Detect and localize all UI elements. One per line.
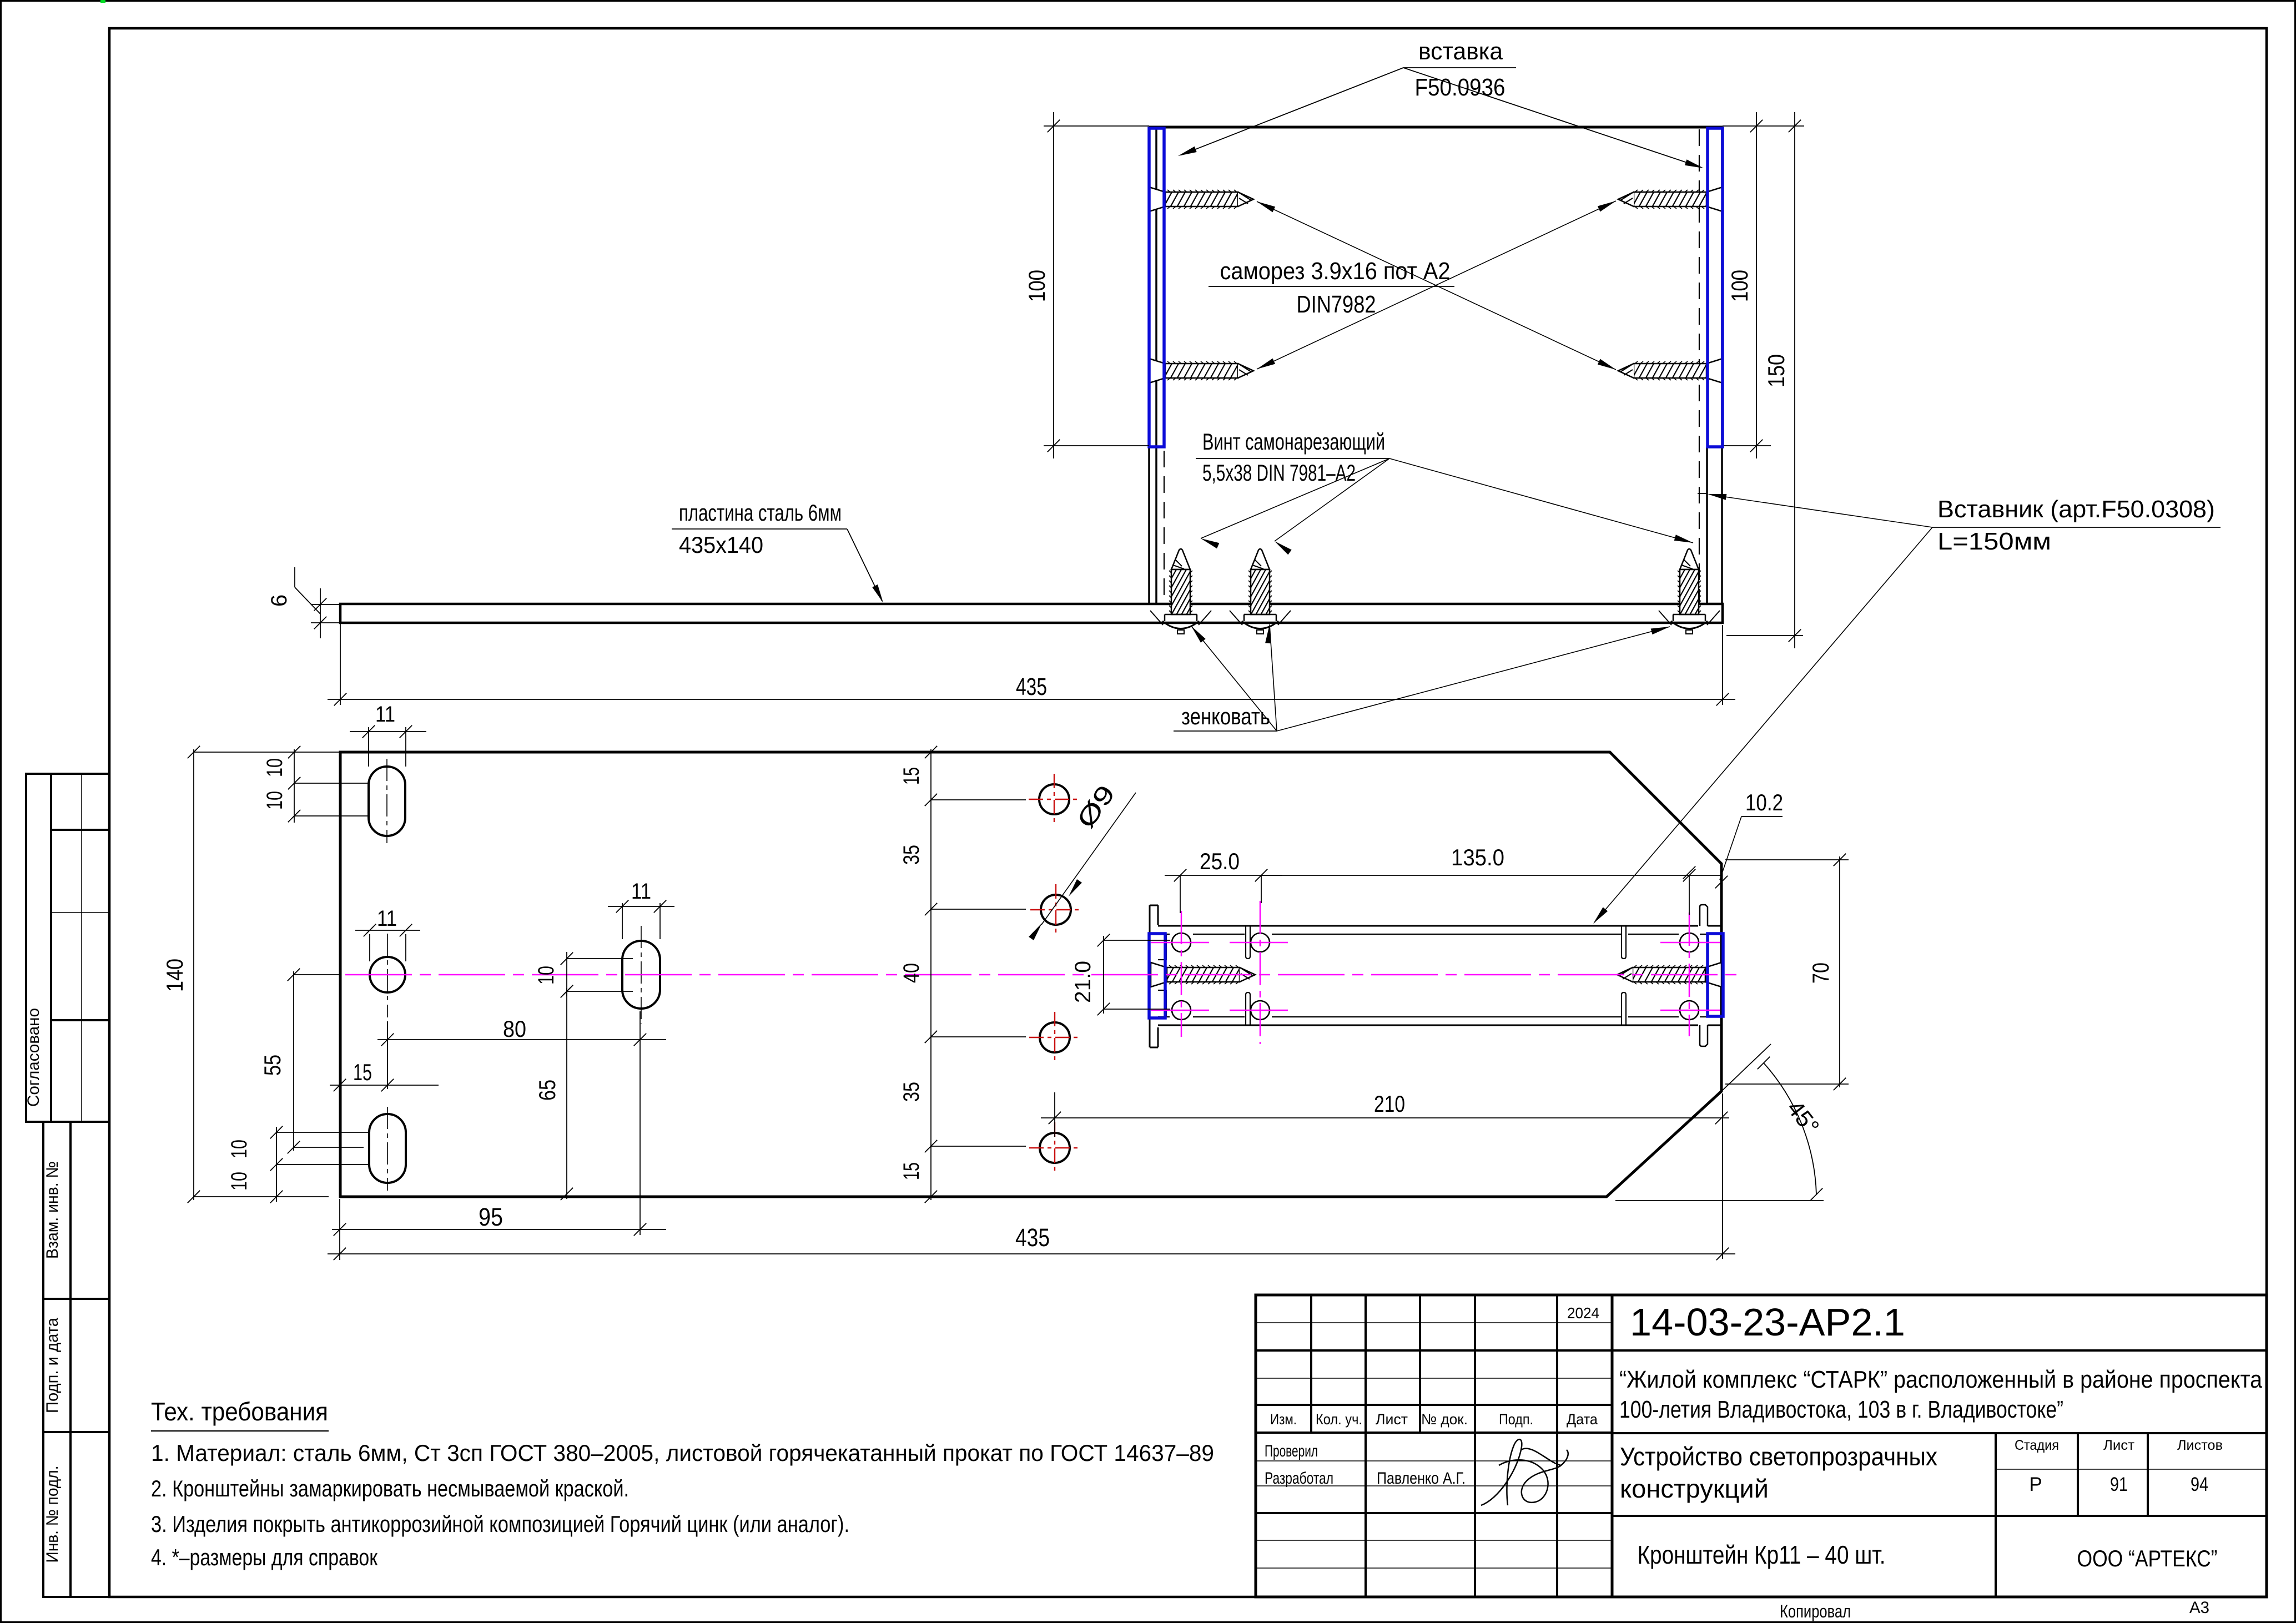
svg-text:5,5х38 DIN 7981–А2: 5,5х38 DIN 7981–А2 <box>1202 460 1356 486</box>
svg-text:14-03-23-АР2.1: 14-03-23-АР2.1 <box>1630 1301 1905 1344</box>
svg-text:Согласовано: Согласовано <box>24 1008 43 1107</box>
svg-text:Разработал: Разработал <box>1265 1469 1333 1488</box>
svg-text:Тех. требования: Тех. требования <box>151 1397 328 1426</box>
svg-text:Лист: Лист <box>1376 1411 1408 1428</box>
svg-text:95: 95 <box>479 1203 503 1231</box>
svg-text:Изм.: Изм. <box>1270 1411 1297 1428</box>
svg-text:10: 10 <box>227 1140 251 1158</box>
svg-text:100: 100 <box>1024 270 1050 302</box>
svg-text:25.0: 25.0 <box>1200 848 1240 874</box>
svg-text:Стадия: Стадия <box>2015 1438 2059 1453</box>
svg-text:№ док.: № док. <box>1421 1411 1468 1428</box>
svg-text:1. Материал: сталь 6мм, Ст 3сп: 1. Материал: сталь 6мм, Ст 3сп ГОСТ 380–… <box>151 1440 1214 1466</box>
svg-text:конструкций: конструкций <box>1620 1474 1769 1503</box>
svg-text:435: 435 <box>1016 673 1047 700</box>
svg-text:21.0: 21.0 <box>1071 961 1095 1003</box>
svg-text:35: 35 <box>899 845 924 865</box>
svg-text:15: 15 <box>353 1059 372 1085</box>
svg-text:Устройство светопрозрачных: Устройство светопрозрачных <box>1620 1442 1937 1471</box>
svg-text:40: 40 <box>899 963 924 983</box>
svg-text:Взам. инв. №: Взам. инв. № <box>43 1161 62 1259</box>
svg-text:Листов: Листов <box>2177 1438 2223 1453</box>
svg-text:саморез 3.9х16 пот А2: саморез 3.9х16 пот А2 <box>1220 258 1451 285</box>
svg-text:15: 15 <box>899 1162 924 1180</box>
svg-text:435х140: 435х140 <box>679 532 763 558</box>
svg-text:Вставник (арт.F50.0308): Вставник (арт.F50.0308) <box>1937 496 2215 523</box>
svg-text:Р: Р <box>2029 1474 2042 1495</box>
svg-text:10: 10 <box>263 758 287 777</box>
svg-text:ООО “АРТЕКС”: ООО “АРТЕКС” <box>2077 1545 2218 1571</box>
svg-text:10: 10 <box>263 791 287 810</box>
svg-text:11: 11 <box>377 906 397 931</box>
svg-text:Проверил: Проверил <box>1265 1442 1318 1460</box>
svg-text:11: 11 <box>375 702 395 727</box>
svg-text:55: 55 <box>259 1055 285 1076</box>
svg-text:210: 210 <box>1374 1091 1405 1117</box>
svg-text:2024: 2024 <box>1567 1304 1599 1322</box>
svg-text:70: 70 <box>1807 962 1834 984</box>
svg-text:91: 91 <box>2110 1474 2128 1495</box>
svg-text:6: 6 <box>267 594 291 607</box>
svg-text:100: 100 <box>1726 270 1753 302</box>
svg-text:4. *–размеры для справок: 4. *–размеры для справок <box>151 1544 378 1570</box>
svg-text:11: 11 <box>631 879 651 904</box>
svg-text:100-летия Владивостока, 103 в: 100-летия Владивостока, 103 в г. Владиво… <box>1619 1396 2063 1423</box>
svg-text:Инв. № подл.: Инв. № подл. <box>43 1466 62 1563</box>
svg-text:10: 10 <box>227 1172 251 1191</box>
svg-text:L=150мм: L=150мм <box>1937 528 2051 555</box>
svg-text:вставка: вставка <box>1418 38 1503 65</box>
svg-text:Винт самонарезающий: Винт самонарезающий <box>1202 429 1385 455</box>
svg-text:Подп.: Подп. <box>1499 1411 1533 1428</box>
svg-text:140: 140 <box>162 959 188 992</box>
svg-text:135.0: 135.0 <box>1451 844 1504 870</box>
svg-text:2. Кронштейны замаркировать не: 2. Кронштейны замаркировать несмываемой … <box>151 1475 629 1501</box>
svg-text:150: 150 <box>1763 354 1789 387</box>
svg-text:10: 10 <box>534 966 558 985</box>
svg-text:35: 35 <box>899 1082 924 1102</box>
svg-text:65: 65 <box>534 1080 560 1101</box>
svg-text:Павленко А.Г.: Павленко А.Г. <box>1377 1469 1466 1488</box>
svg-text:Дата: Дата <box>1567 1411 1598 1428</box>
svg-text:10.2: 10.2 <box>1745 789 1783 815</box>
svg-text:80: 80 <box>503 1016 526 1042</box>
svg-text:А3: А3 <box>2189 1599 2209 1617</box>
svg-text:15: 15 <box>899 767 924 785</box>
svg-text:435: 435 <box>1015 1223 1050 1252</box>
svg-text:Подп. и дата: Подп. и дата <box>43 1318 62 1413</box>
svg-text:94: 94 <box>2191 1474 2208 1495</box>
svg-text:Лист: Лист <box>2103 1438 2135 1453</box>
svg-text:Копировал: Копировал <box>1780 1601 1851 1621</box>
svg-text:DIN7982: DIN7982 <box>1297 291 1376 318</box>
svg-text:Кронштейн Кр11 – 40 шт.: Кронштейн Кр11 – 40 шт. <box>1638 1540 1886 1569</box>
svg-text:“Жилой комплекс “СТАРК” распол: “Жилой комплекс “СТАРК” расположенный в … <box>1619 1366 2262 1393</box>
svg-text:Кол. уч.: Кол. уч. <box>1316 1411 1362 1428</box>
svg-text:3. Изделия покрыть антикоррози: 3. Изделия покрыть антикоррозийной компо… <box>151 1511 849 1537</box>
svg-text:пластина сталь 6мм: пластина сталь 6мм <box>679 500 842 526</box>
